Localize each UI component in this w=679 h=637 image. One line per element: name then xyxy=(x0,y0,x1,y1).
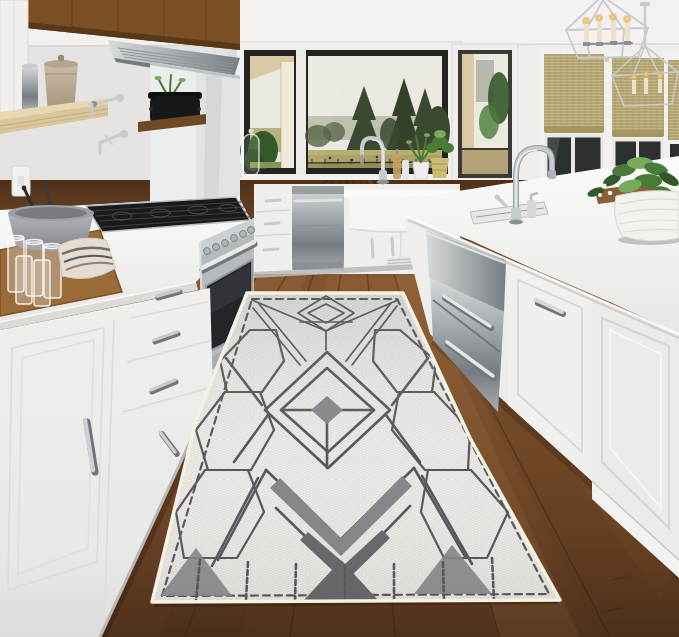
light-switch xyxy=(12,166,30,196)
cabinet-pull xyxy=(392,238,393,255)
white-ribbed-bowl xyxy=(614,191,679,241)
dishwasher-handle xyxy=(295,200,341,201)
kitchen-photo: Bright white galley kitchen with walnut … xyxy=(0,0,679,637)
metal-canister xyxy=(22,64,38,111)
stainless-backsplash xyxy=(150,62,240,212)
drawer-pull xyxy=(266,200,280,201)
glass-cloche xyxy=(243,129,259,177)
woven-shade-1 xyxy=(544,54,604,133)
cabinet-pull xyxy=(372,240,373,257)
drawer-pull xyxy=(265,223,279,224)
white-flower xyxy=(601,183,606,188)
dishwasher xyxy=(292,186,344,270)
center-window xyxy=(236,42,462,182)
kitchen-photo-svg: Bright white galley kitchen with walnut … xyxy=(0,0,679,637)
drinking-glasses xyxy=(8,236,61,306)
drawer-pull xyxy=(264,249,278,250)
patio-door xyxy=(452,44,518,184)
striped-towel xyxy=(58,238,116,279)
